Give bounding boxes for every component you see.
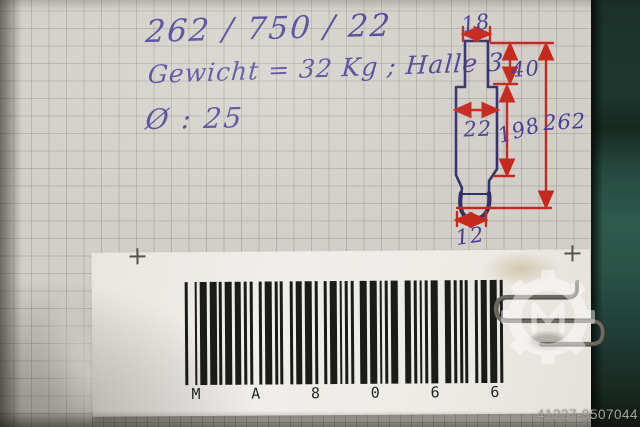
barcode-char: 8 xyxy=(311,385,320,402)
registration-mark xyxy=(564,245,580,261)
barcode-label: M A 8 0 6 6 xyxy=(91,249,591,416)
dim-label-body-width: 22 xyxy=(462,117,493,142)
watermark-id: 41227-9507044 xyxy=(537,407,638,422)
dim-label-top-width: 18 xyxy=(460,9,492,37)
machine-edge xyxy=(591,0,640,427)
dim-label-total-height: 262 xyxy=(541,109,586,135)
barcode-char: A xyxy=(251,386,260,403)
barcode-char: 0 xyxy=(371,385,380,402)
barcode-bars xyxy=(185,280,506,385)
barcode-char: M xyxy=(191,386,200,403)
photo-warehouse-tag: 262 / 750 / 22 Gewicht = 32 Kg ; Halle 3… xyxy=(0,0,640,427)
dim-label-tip-width: 12 xyxy=(454,222,486,250)
registration-mark xyxy=(129,248,145,264)
dim-label-body-height: 198 xyxy=(495,113,543,148)
barcode-text: M A 8 0 6 6 xyxy=(185,383,505,403)
barcode: M A 8 0 6 6 xyxy=(185,280,506,403)
dim-label-upper-height: 40 xyxy=(509,56,540,82)
barcode-char: 6 xyxy=(490,384,499,401)
barcode-char: 6 xyxy=(430,384,439,401)
